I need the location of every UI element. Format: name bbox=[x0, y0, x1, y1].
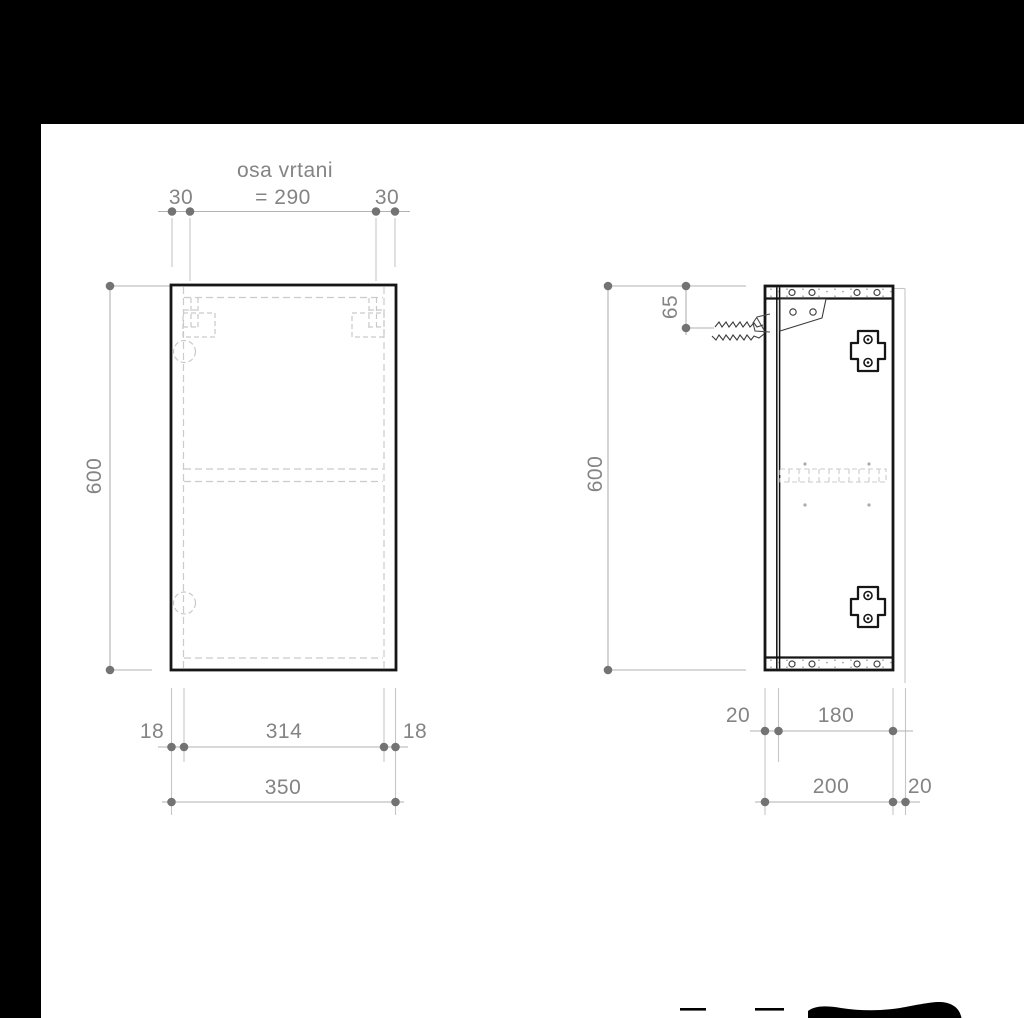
front-drill-offset-left: 30 bbox=[169, 186, 193, 210]
front-inner-width-value: 314 bbox=[266, 720, 303, 744]
side-height-value: 600 bbox=[584, 456, 608, 493]
front-cabinet-outline bbox=[171, 285, 396, 670]
side-bottom-rail bbox=[765, 658, 893, 669]
side-view bbox=[604, 282, 920, 815]
front-panel-left-value: 18 bbox=[140, 720, 164, 744]
side-dimension-screw-axis bbox=[682, 282, 714, 335]
side-dimension-height bbox=[604, 282, 746, 675]
side-front-offset-value: 20 bbox=[726, 704, 750, 728]
side-total-depth-value: 200 bbox=[813, 775, 850, 799]
side-screw-axis-offset-value: 65 bbox=[659, 295, 683, 319]
front-dimension-height bbox=[106, 282, 171, 675]
front-drill-axis-label: osa vrtani bbox=[237, 159, 333, 183]
cabinet-drawing-svg bbox=[0, 0, 1024, 1018]
side-back-offset-value: 20 bbox=[908, 775, 932, 799]
front-height-value: 600 bbox=[83, 458, 107, 495]
side-wall-reference-line bbox=[893, 289, 905, 684]
side-inner-depth-value: 180 bbox=[818, 704, 855, 728]
side-top-rail bbox=[765, 288, 893, 299]
technical-drawing-page: osa vrtani = 290 30 30 600 18 314 18 350… bbox=[0, 0, 1024, 1018]
front-total-width-value: 350 bbox=[265, 776, 302, 800]
front-dimension-drill-axis bbox=[158, 207, 410, 281]
bottom-photo-fragment bbox=[680, 1002, 962, 1018]
front-drill-axis-spacing: = 290 bbox=[255, 186, 311, 210]
front-panel-right-value: 18 bbox=[403, 720, 427, 744]
front-drill-offset-right: 30 bbox=[375, 186, 399, 210]
